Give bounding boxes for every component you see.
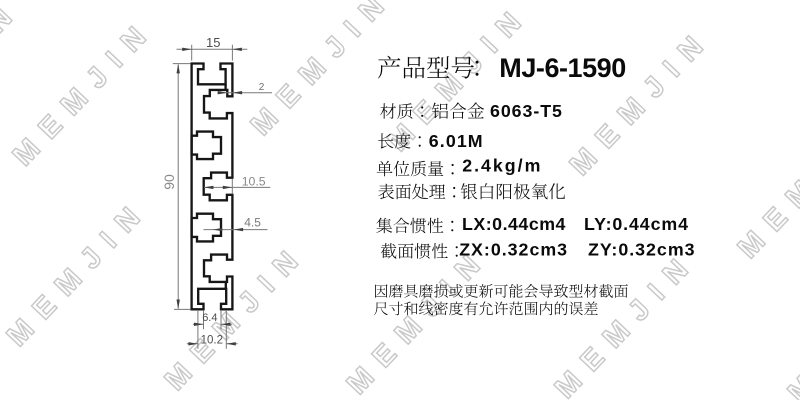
svg-text:4.5: 4.5 bbox=[244, 216, 261, 230]
svg-text:MJ-6-1590: MJ-6-1590 bbox=[499, 53, 626, 83]
svg-text:90: 90 bbox=[161, 174, 177, 190]
svg-text:LY:0.44cm4: LY:0.44cm4 bbox=[584, 214, 689, 234]
svg-text:2.4kg/m: 2.4kg/m bbox=[462, 156, 542, 176]
svg-text:15: 15 bbox=[206, 35, 220, 50]
svg-text:6063-T5: 6063-T5 bbox=[490, 101, 563, 121]
svg-text:LX:0.44cm4: LX:0.44cm4 bbox=[462, 214, 566, 234]
svg-text:10.5: 10.5 bbox=[242, 174, 266, 188]
svg-text:6.4: 6.4 bbox=[202, 312, 217, 324]
svg-text:ZY:0.32cm3: ZY:0.32cm3 bbox=[588, 239, 696, 259]
svg-text:2: 2 bbox=[259, 82, 265, 93]
svg-text:6.01M: 6.01M bbox=[429, 131, 484, 151]
svg-text:ZX:0.32cm3: ZX:0.32cm3 bbox=[459, 239, 568, 259]
svg-text:10.2: 10.2 bbox=[201, 334, 223, 346]
